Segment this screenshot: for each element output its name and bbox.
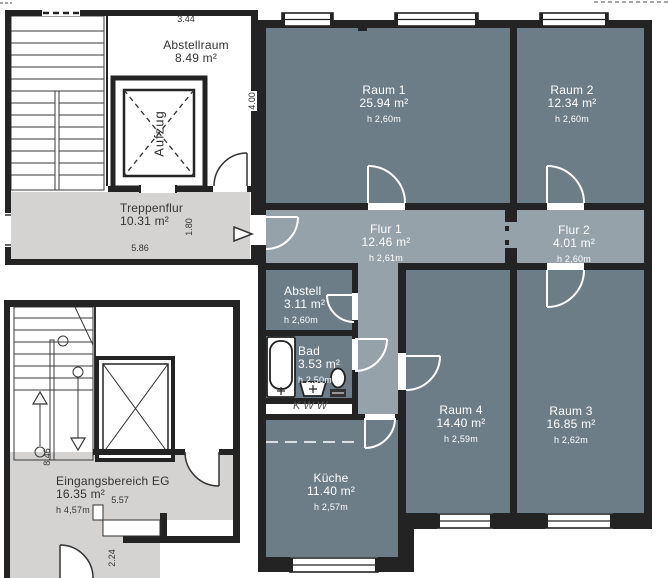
- label-raum2: Raum 2 12.34 m² h 2,60m: [502, 84, 642, 126]
- label-raum1: Raum 1 25.94 m² h 2,60m: [314, 84, 454, 126]
- label-kww: KWW: [293, 400, 330, 412]
- elevator-lower: [97, 358, 173, 460]
- label-flur2: Flur 2 4.01 m² h 2,60m: [504, 224, 644, 266]
- window-raum3: [545, 514, 613, 528]
- dim-eg-stair-depth: 8.46: [42, 437, 52, 477]
- label-kueche: Küche 11.40 m² h 2,57m: [261, 472, 401, 514]
- window-raum1-b: [395, 13, 478, 26]
- label-abstellraum: Abstellraum 8.49 m²: [126, 39, 266, 65]
- label-bad: Bad 3.53 m² h 2,50m: [298, 345, 428, 387]
- label-aufzug: Aufzug: [152, 104, 167, 164]
- label-flur1: Flur 1 12.46 m² h 2,61m: [316, 223, 456, 265]
- dim-eg-bottom-width: 2.24: [107, 538, 117, 578]
- dim-treppenflur-width: 5.86: [120, 243, 160, 253]
- label-raum3: Raum 3 16.85 m² h 2,62m: [501, 405, 641, 447]
- dim-eg-width: 5.57: [100, 495, 140, 505]
- stairs-lower: [14, 307, 95, 460]
- top-wall-notch: [358, 26, 367, 31]
- window-dashed-stairwell: [42, 10, 80, 16]
- window-raum2: [540, 13, 608, 26]
- door-abstellraum: [214, 153, 247, 186]
- floorplan-canvas: Abstellraum 8.49 m² Raum 1 25.94 m² h 2,…: [0, 0, 668, 578]
- ruler-marks: [0, 2, 668, 3]
- dim-abstellraum-depth: 4.00: [247, 81, 257, 121]
- window-kueche: [290, 558, 378, 572]
- window-raum4: [437, 514, 493, 528]
- label-abstell: Abstell 3.11 m² h 2,60m: [284, 285, 414, 327]
- stairs-upper: [11, 16, 104, 190]
- dim-abstellraum-width: 3.44: [166, 14, 206, 24]
- bathtub: [267, 337, 295, 397]
- window-raum1-a: [282, 13, 333, 26]
- dim-treppenflur-depth: 1.80: [184, 207, 194, 247]
